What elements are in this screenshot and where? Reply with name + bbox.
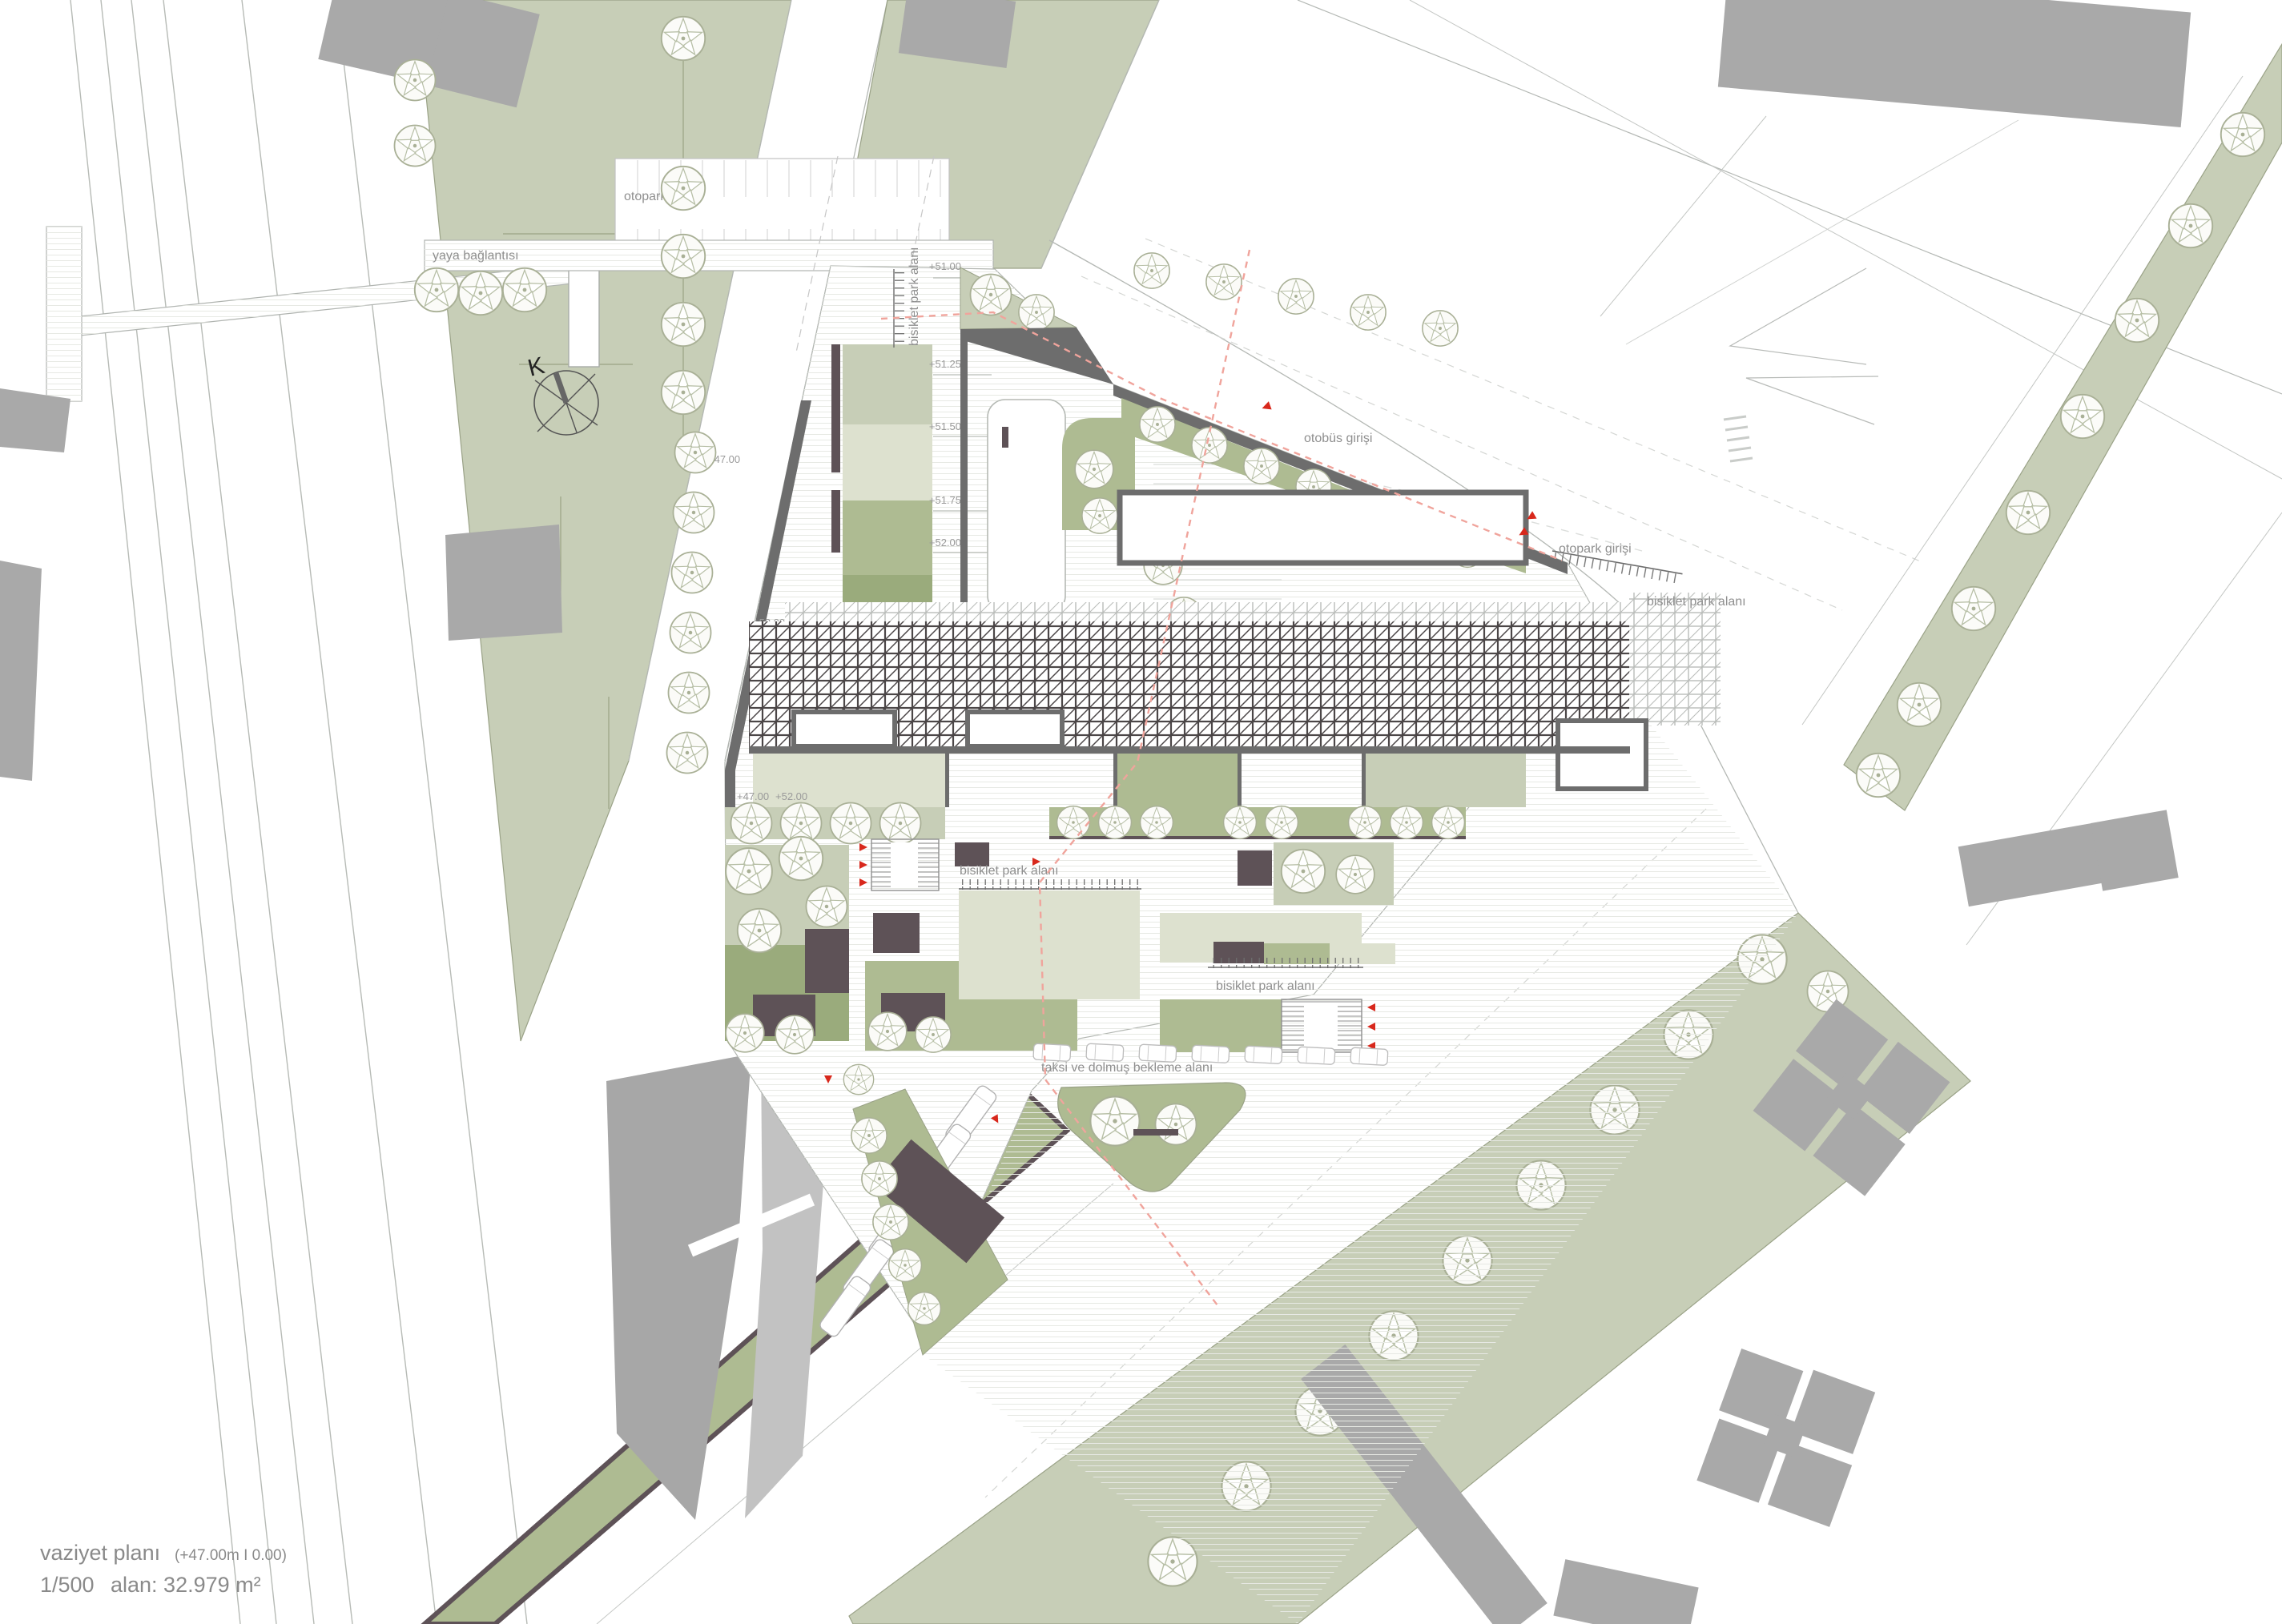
site-plan-canvas: otopark yaya bağlantısı — [0, 0, 2282, 1624]
bisiklet-park-label-1: bisiklet park alanı — [960, 864, 1059, 878]
plan-title: vaziyet planı — [40, 1541, 160, 1565]
lower-wing — [749, 746, 1630, 807]
elevation-51-75: +51.75 — [929, 494, 961, 506]
elevation-51-00: +51.00 — [929, 260, 961, 272]
south-tree-rows — [725, 803, 1466, 844]
plan-datum: (+47.00m I 0.00) — [175, 1547, 287, 1564]
otobus-girisi-label: otobüs girişi — [1304, 432, 1372, 445]
otopark-girisi-label: otopark girişi — [1559, 542, 1632, 556]
bike-parking-northwest — [894, 269, 905, 348]
bisiklet-park-label-2: bisiklet park alanı — [1216, 979, 1315, 993]
plaza-elevation-47: +47.00 — [737, 790, 769, 802]
plan-area: alan: 32.979 m² — [111, 1573, 261, 1597]
terrace-patches — [843, 344, 932, 635]
plaza-elevation-52: +52.00 — [775, 790, 807, 802]
upper-hall-building — [1120, 492, 1526, 563]
yaya-baglantisi-label: yaya bağlantısı — [433, 249, 519, 263]
elevation-52-00: +52.00 — [929, 537, 961, 549]
bisiklet-park-label-vertical: bisiklet park alanı — [908, 247, 921, 346]
plan-scale: 1/500 — [40, 1573, 95, 1597]
taksi-dolmus-label: taksi ve dolmuş bekleme alanı — [1041, 1061, 1213, 1075]
elevation-51-50: +51.50 — [929, 420, 961, 432]
elevation-51-25: +51.25 — [929, 358, 961, 370]
bisiklet-park-label-3: bisiklet park alanı — [1647, 595, 1746, 609]
